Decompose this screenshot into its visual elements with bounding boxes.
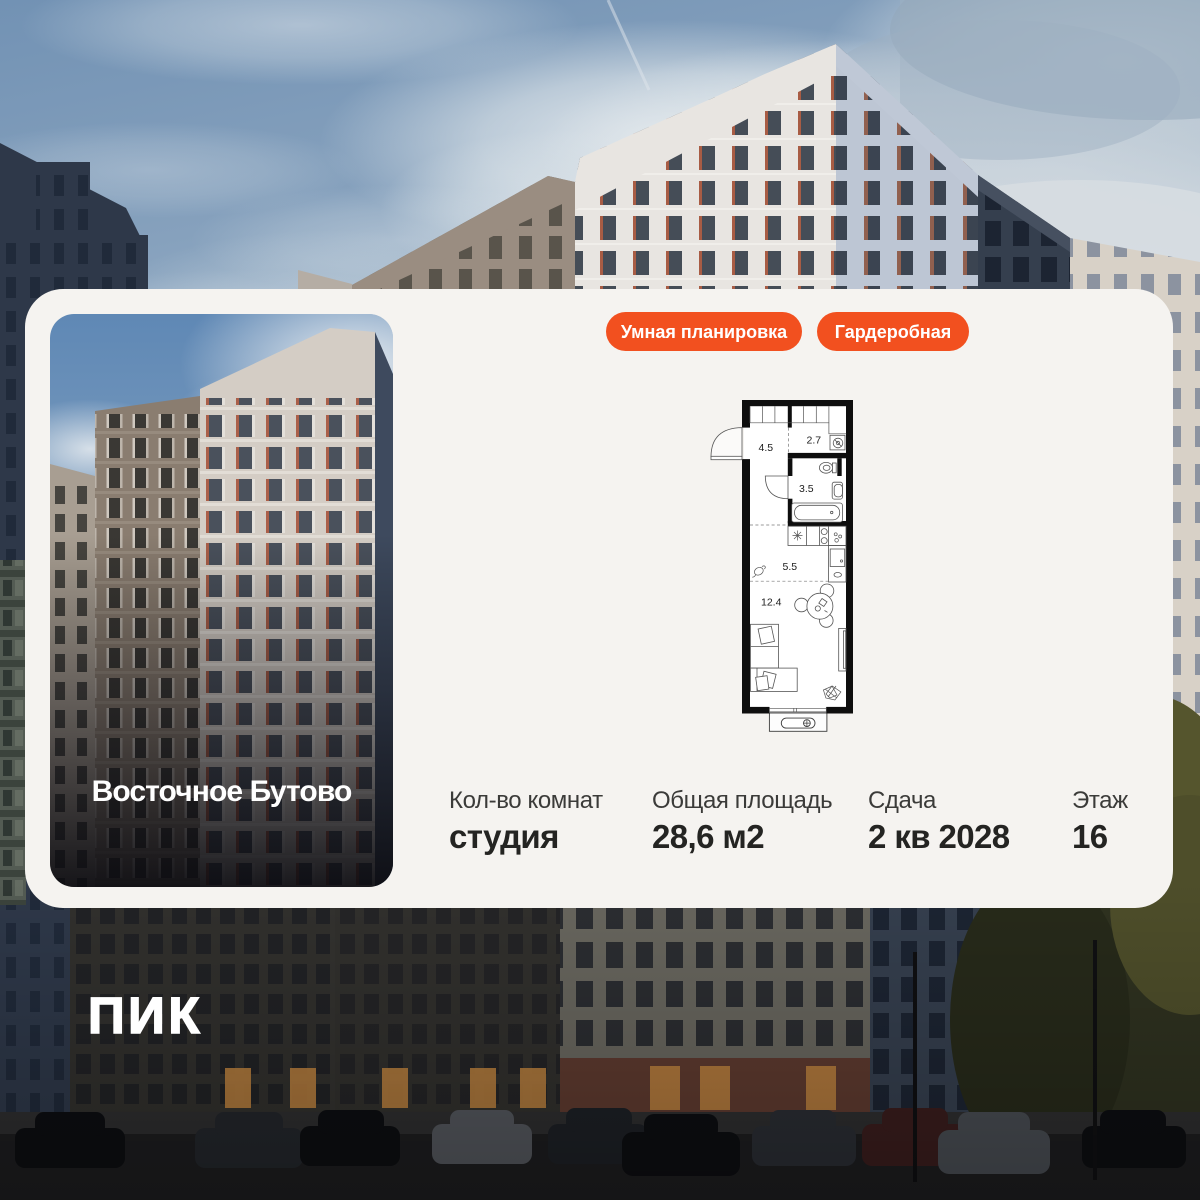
svg-text:3.5: 3.5 [799,483,814,495]
svg-text:2.7: 2.7 [807,435,822,447]
svg-text:4.5: 4.5 [759,442,774,454]
svg-text:12.4: 12.4 [761,597,782,609]
svg-text:5.5: 5.5 [783,561,798,573]
